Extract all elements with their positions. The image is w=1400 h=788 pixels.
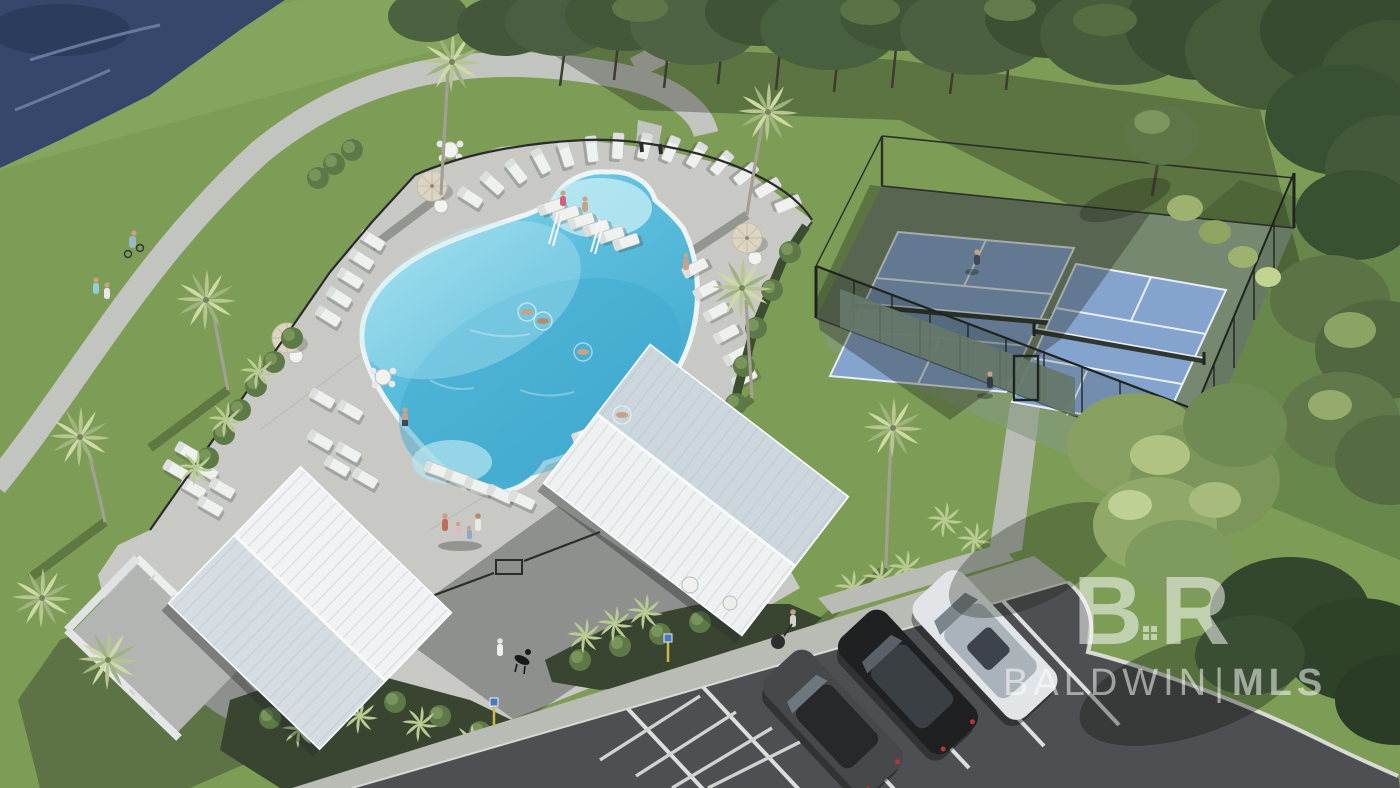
picnic-table [723,596,737,610]
stroller [771,635,785,649]
scene-canvas [0,0,1400,788]
north-gate-post [660,144,661,154]
picnic-table [682,577,698,593]
aerial-rendering: B R BALDWIN|MLS [0,0,1400,788]
